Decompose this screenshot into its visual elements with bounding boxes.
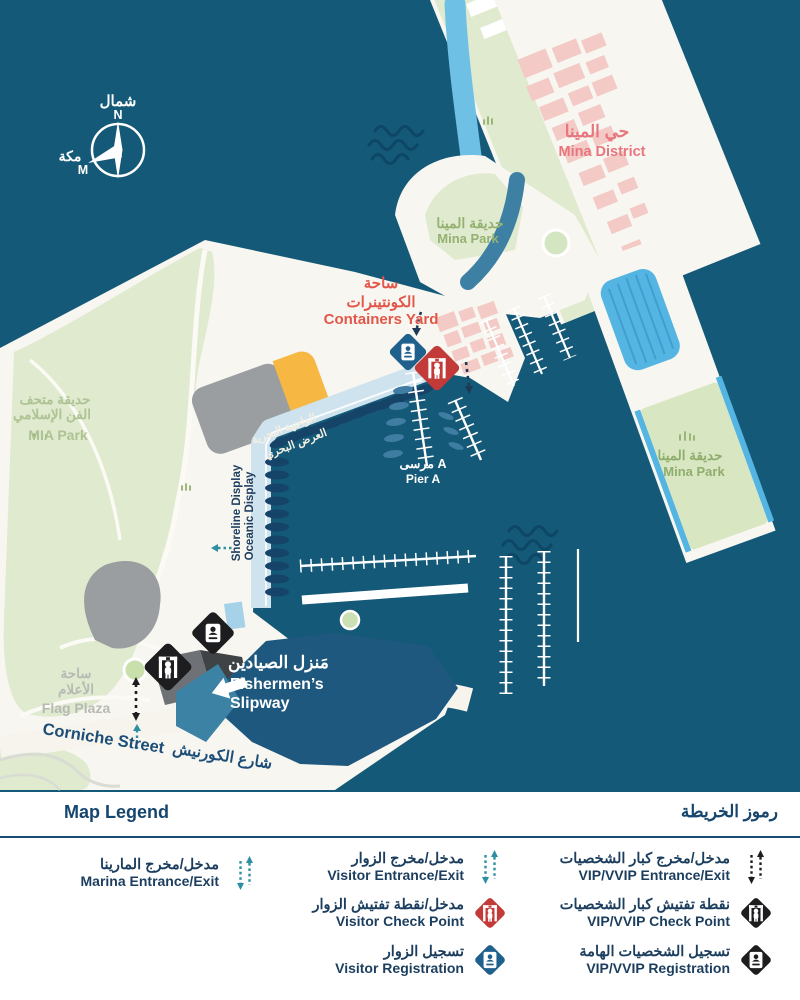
legend-item-visitor-entrance: مدخل/مخرج الزوار Visitor Entrance/Exit — [295, 848, 510, 886]
svg-text:MIA Park: MIA Park — [28, 427, 88, 443]
legend-col-vip: مدخل/مخرج كبار الشخصيات VIP/VVIP Entranc… — [528, 848, 776, 987]
svg-text:M: M — [78, 163, 88, 177]
svg-text:الفن الإسلامي: الفن الإسلامي — [13, 407, 91, 424]
diamond-registration-icon — [736, 940, 776, 980]
svg-text:Flag Plaza: Flag Plaza — [42, 700, 111, 716]
roundabout — [543, 230, 569, 256]
dashed-route-icon — [470, 848, 510, 886]
flag-plaza-label: ساحة — [60, 666, 91, 681]
svg-text:Fishermen’s: Fishermen’s — [230, 676, 324, 693]
svg-text:Mina Park: Mina Park — [437, 231, 499, 246]
mina-district-label: حي المينا — [565, 122, 630, 142]
mia-park-label: حديقة متحف — [19, 392, 90, 407]
legend-item-vip-checkpoint: نقطة تفتيش كبار الشخصيات VIP/VVIP Check … — [528, 893, 776, 933]
svg-text:Slipway: Slipway — [230, 695, 290, 712]
svg-text:Containers Yard: Containers Yard — [324, 311, 439, 328]
legend-title-en: Map Legend — [64, 802, 169, 823]
legend-item-visitor-checkpoint: مدخل/نقطة تفتيش الزوار Visitor Check Poi… — [295, 893, 510, 933]
svg-text:مكة: مكة — [59, 148, 82, 164]
diamond-checkpoint-icon — [736, 893, 776, 933]
diamond-registration-icon — [470, 940, 510, 980]
pier-a-label: مرسى A — [400, 457, 447, 472]
legend-col-marina: مدخل/مخرج المارينا Marina Entrance/Exit — [50, 848, 265, 899]
legend-item-visitor-registration: تسجيل الزوار Visitor Registration — [295, 940, 510, 980]
legend-item-vip-registration: تسجيل الشخصيات الهامة VIP/VVIP Registrat… — [528, 940, 776, 980]
svg-text:Mina District: Mina District — [558, 144, 645, 160]
map-canvas: شمال N مكة M حي المينا Mina District حدي… — [0, 0, 800, 792]
svg-text:Pier A: Pier A — [406, 472, 441, 486]
svg-text:Mina Park: Mina Park — [663, 464, 725, 479]
svg-text:الأعلام: الأعلام — [58, 680, 94, 698]
shoreline-display-label: Shoreline Display — [231, 464, 243, 561]
dashed-route-icon — [225, 854, 265, 892]
legend-divider — [0, 836, 800, 838]
legend-item-vip-entrance: مدخل/مخرج كبار الشخصيات VIP/VVIP Entranc… — [528, 848, 776, 886]
map-poster: شمال N مكة M حي المينا Mina District حدي… — [0, 0, 800, 1000]
dashed-route-icon — [736, 848, 776, 886]
diamond-checkpoint-icon — [470, 893, 510, 933]
fishermens-slipway-label: مَنزل الصيادين — [228, 653, 329, 673]
svg-text:Oceanic Display: Oceanic Display — [244, 471, 256, 560]
legend-item-marina-entrance: مدخل/مخرج المارينا Marina Entrance/Exit — [50, 854, 265, 892]
map-legend: Map Legend رموز الخريطة مدخل/مخرج الماري… — [0, 792, 800, 1000]
legend-title-ar: رموز الخريطة — [681, 802, 778, 822]
svg-text:N: N — [113, 108, 122, 122]
mina-park-top-label: حديقة المينا — [436, 215, 503, 231]
mina-park-right-label: حديقة المينا — [658, 448, 723, 463]
legend-col-visitor: مدخل/مخرج الزوار Visitor Entrance/Exit م… — [295, 848, 510, 987]
svg-text:الكونتينرات: الكونتينرات — [346, 294, 415, 311]
containers-yard-label: ساحة — [364, 275, 398, 292]
